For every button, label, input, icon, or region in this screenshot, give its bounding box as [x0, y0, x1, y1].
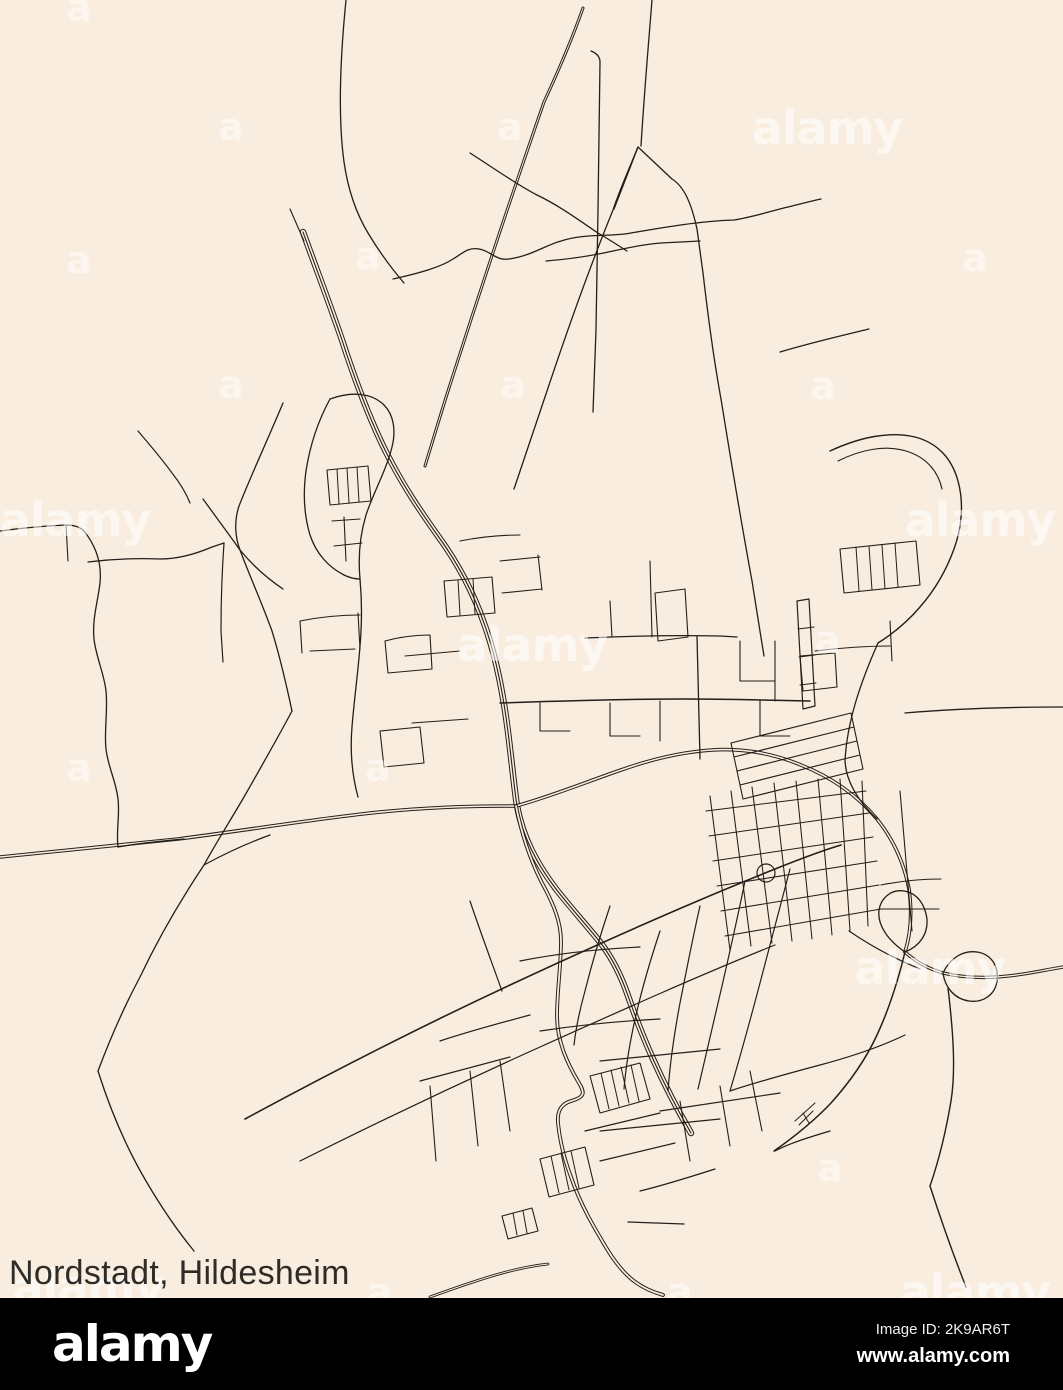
road-segment: [334, 543, 362, 546]
road-segment: [430, 1264, 548, 1297]
road-segment: [930, 988, 954, 1186]
road-segment: [660, 1093, 780, 1111]
road-segment: [600, 1049, 720, 1061]
road-segment: [221, 543, 224, 662]
road-segment: [357, 467, 359, 502]
road-segment: [815, 646, 890, 651]
road-map: [0, 0, 1063, 1298]
road-segment: [300, 615, 360, 621]
road-map-svg: [0, 0, 1063, 1298]
road-segment: [709, 813, 869, 836]
road-segment: [300, 621, 302, 653]
road-segment: [0, 525, 84, 531]
road-segment: [740, 641, 775, 681]
road-segment: [538, 555, 542, 590]
road-segment: [500, 557, 540, 561]
road-segment: [425, 8, 583, 466]
road-segment: [412, 719, 468, 723]
road-segment: [905, 952, 1063, 977]
road-segment: [740, 755, 860, 785]
road-segment: [882, 545, 885, 589]
road-segment: [590, 1063, 650, 1113]
road-segment: [655, 589, 688, 641]
road-segment: [628, 1222, 684, 1224]
road-segment: [610, 703, 640, 736]
road-segment: [514, 147, 638, 489]
road-segment: [138, 431, 190, 503]
road-segment: [551, 1156, 559, 1193]
road-segment: [236, 403, 292, 711]
road-segment: [640, 1169, 715, 1191]
road-segment: [840, 779, 850, 931]
road-segment: [420, 1057, 510, 1081]
road-segment: [516, 750, 911, 952]
road-segment: [879, 891, 927, 952]
road-segment: [760, 701, 790, 736]
road-segment: [88, 543, 224, 562]
road-segment: [516, 806, 663, 1295]
road-segment: [851, 713, 863, 769]
alamy-website-url: www.alamy.com: [857, 1345, 1010, 1368]
road-segment: [641, 0, 652, 146]
road-segment: [470, 153, 627, 251]
road-segment: [520, 947, 640, 961]
road-segment: [774, 952, 905, 1151]
road-segment: [540, 1147, 594, 1197]
road-segment: [905, 707, 1063, 713]
road-segment: [203, 499, 283, 589]
road-segment: [546, 241, 700, 261]
footer-meta: Image ID: 2K9AR6T www.alamy.com: [857, 1321, 1010, 1368]
road-segment: [881, 879, 941, 885]
road-segment: [98, 1071, 194, 1251]
road-segment: [697, 636, 700, 759]
road-segment: [332, 519, 360, 521]
road-segment: [600, 1119, 720, 1131]
image-id-label: Image ID: 2K9AR6T: [857, 1321, 1010, 1338]
road-segment: [470, 901, 502, 991]
road-segment: [340, 0, 404, 283]
road-segment: [797, 599, 815, 709]
road-segment: [0, 806, 516, 857]
road-segment: [750, 1071, 762, 1131]
road-segment: [430, 1086, 436, 1161]
road-segment: [800, 653, 837, 691]
road-segment: [737, 741, 857, 771]
road-segment: [330, 394, 394, 579]
image-caption: Nordstadt, Hildesheim: [9, 1254, 350, 1293]
road-segment: [358, 613, 360, 649]
road-segment: [631, 1065, 639, 1101]
road-segment: [351, 579, 361, 797]
road-segment: [869, 546, 872, 590]
road-segment: [516, 750, 911, 952]
road-segment: [66, 525, 68, 561]
road-segment: [600, 1143, 675, 1161]
road-segment: [731, 713, 851, 743]
road-segment: [780, 329, 869, 352]
road-segment: [798, 627, 814, 629]
road-segment: [344, 517, 346, 561]
road-segment: [380, 727, 424, 767]
road-segment: [337, 469, 339, 504]
road-segment: [731, 791, 751, 946]
road-segment: [895, 543, 898, 587]
road-segment: [500, 699, 810, 703]
road-segment: [460, 535, 520, 541]
road-segment: [840, 541, 920, 593]
road-segment: [347, 468, 349, 503]
road-segment: [310, 649, 355, 651]
road-segment: [930, 1186, 966, 1287]
road-segment: [838, 448, 942, 489]
road-segment: [905, 952, 1063, 977]
alamy-logo: alamy: [52, 1319, 211, 1369]
stock-photo-page: alamyalamyalamyalamyalamyalamyalamyaaaaa…: [0, 0, 1063, 1390]
road-segment: [601, 1073, 609, 1109]
road-segment: [668, 906, 700, 1091]
road-segment: [856, 547, 859, 591]
road-segment: [502, 589, 542, 593]
road-segment: [513, 1213, 517, 1235]
road-segment: [425, 8, 583, 466]
road-segment: [585, 636, 737, 638]
road-segment: [98, 711, 292, 1071]
road-segment: [720, 1086, 730, 1146]
road-segment: [440, 1015, 530, 1041]
road-segment: [803, 1113, 809, 1123]
road-segment: [540, 703, 570, 731]
road-segment: [890, 621, 892, 661]
road-segment: [730, 869, 790, 1091]
road-segment: [470, 1071, 478, 1146]
road-segment: [458, 580, 460, 615]
road-segment: [621, 1067, 629, 1103]
road-segment: [500, 1061, 510, 1131]
road-segment: [405, 651, 460, 656]
road-segment: [710, 796, 730, 950]
road-segment: [523, 1211, 527, 1233]
road-segment: [611, 1070, 619, 1106]
road-segment: [830, 435, 961, 643]
footer-bar: alamy Image ID: 2K9AR6T www.alamy.com: [0, 1298, 1063, 1390]
road-segment: [290, 209, 304, 241]
road-segment: [610, 601, 612, 637]
road-segment: [303, 232, 691, 1133]
road-segment: [502, 1208, 538, 1239]
road-segment: [304, 399, 360, 579]
road-segment: [204, 835, 270, 865]
road-segment: [775, 1131, 830, 1151]
road-segment: [818, 779, 832, 935]
road-segment: [650, 561, 652, 637]
road-segment: [730, 1035, 905, 1091]
road-segment: [734, 727, 854, 757]
road-segment: [743, 769, 863, 799]
road-segment: [698, 881, 745, 1089]
road-segment: [84, 531, 119, 847]
